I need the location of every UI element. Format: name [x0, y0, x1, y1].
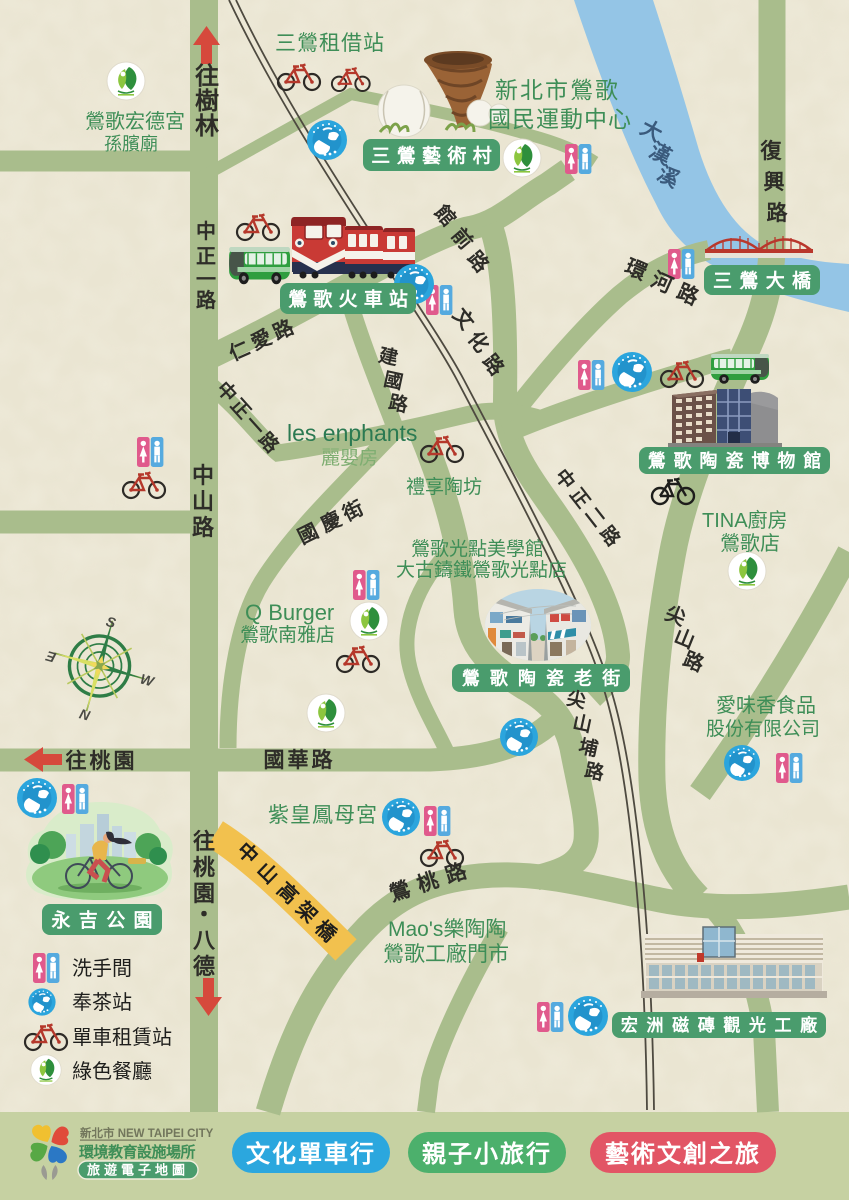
svg-text:公: 公: [106, 909, 125, 931]
svg-text:復: 復: [760, 139, 783, 163]
svg-text:洗手間: 洗手間: [72, 957, 132, 980]
svg-text:國民運動中心: 國民運動中心: [488, 106, 632, 132]
svg-text:華: 華: [288, 749, 309, 772]
svg-text:一: 一: [196, 269, 216, 291]
svg-text:鶯歌光點美學館: 鶯歌光點美學館: [411, 538, 544, 560]
svg-text:孫臏廟: 孫臏廟: [104, 134, 158, 154]
svg-text:Q Burger: Q Burger: [245, 600, 334, 625]
svg-text:路: 路: [196, 288, 217, 312]
svg-text:大: 大: [766, 269, 785, 292]
svg-text:旅遊電子地圖: 旅遊電子地圖: [87, 1163, 189, 1178]
svg-text:宏: 宏: [621, 1015, 638, 1035]
svg-text:觀: 觀: [723, 1015, 740, 1035]
svg-text:紫皇鳳母宮: 紫皇鳳母宮: [268, 804, 378, 827]
svg-text:路: 路: [767, 201, 789, 225]
svg-text:單車租賃站: 單車租賃站: [72, 1026, 172, 1049]
svg-text:路: 路: [192, 515, 215, 540]
svg-text:藝術文創之旅: 藝術文創之旅: [605, 1140, 761, 1168]
svg-text:藝: 藝: [422, 145, 441, 167]
svg-text:陶: 陶: [518, 668, 536, 689]
svg-text:中: 中: [192, 463, 214, 488]
svg-text:園: 園: [114, 750, 135, 773]
svg-text:老: 老: [574, 668, 592, 689]
svg-text:桃: 桃: [90, 749, 111, 773]
svg-text:鶯歌宏德宮: 鶯歌宏德宮: [85, 110, 185, 133]
svg-text:鶯: 鶯: [288, 287, 307, 310]
svg-text:橋: 橋: [792, 269, 812, 292]
svg-text:三: 三: [371, 146, 390, 167]
svg-text:火: 火: [338, 288, 358, 310]
svg-text:永: 永: [50, 908, 71, 931]
svg-text:山: 山: [192, 489, 214, 514]
svg-text:歌: 歌: [490, 668, 509, 689]
svg-text:綠色餐廳: 綠色餐廳: [72, 1060, 152, 1083]
svg-text:洲: 洲: [647, 1016, 664, 1035]
svg-text:三鶯租借站: 三鶯租借站: [275, 32, 385, 55]
svg-text:林: 林: [195, 113, 219, 140]
svg-text:文化單車行: 文化單車行: [246, 1140, 376, 1168]
svg-text:工: 工: [775, 1016, 792, 1035]
svg-text:瓷: 瓷: [726, 450, 744, 471]
svg-text:・: ・: [193, 902, 215, 927]
svg-text:鶯歌工廠門市: 鶯歌工廠門市: [383, 943, 509, 966]
svg-text:歌: 歌: [674, 450, 693, 471]
svg-text:往: 往: [66, 749, 87, 773]
svg-text:三: 三: [713, 271, 732, 292]
svg-text:國: 國: [264, 749, 285, 772]
svg-text:八: 八: [193, 928, 216, 953]
svg-text:鶯: 鶯: [462, 668, 480, 689]
svg-text:物: 物: [777, 450, 795, 471]
svg-text:站: 站: [389, 287, 408, 310]
svg-text:鶯歌店: 鶯歌店: [720, 532, 780, 555]
svg-text:大古鑄鐵鶯歌光點店: 大古鑄鐵鶯歌光點店: [396, 559, 567, 581]
svg-text:桃: 桃: [193, 855, 215, 880]
svg-text:往: 往: [195, 62, 219, 90]
svg-text:新北市鶯歌: 新北市鶯歌: [495, 77, 620, 103]
svg-text:正: 正: [196, 246, 216, 268]
svg-text:路: 路: [312, 748, 334, 772]
svg-text:往: 往: [193, 829, 215, 854]
svg-text:歌: 歌: [313, 287, 333, 310]
svg-text:環境教育設施場所: 環境教育設施場所: [79, 1143, 196, 1161]
svg-text:廠: 廠: [800, 1015, 818, 1035]
svg-text:新北市 NEW TAIPEI CITY: 新北市 NEW TAIPEI CITY: [80, 1126, 214, 1140]
svg-text:TINA廚房: TINA廚房: [702, 508, 788, 532]
svg-text:車: 車: [364, 287, 383, 310]
svg-text:博: 博: [752, 450, 770, 471]
svg-text:興: 興: [764, 171, 785, 194]
svg-text:街: 街: [601, 668, 620, 689]
svg-text:親子小旅行: 親子小旅行: [422, 1140, 552, 1168]
svg-text:鶯: 鶯: [648, 450, 666, 471]
svg-text:村: 村: [473, 144, 492, 167]
svg-text:德: 德: [193, 954, 215, 979]
svg-text:麗嬰房: 麗嬰房: [321, 447, 378, 469]
svg-text:磚: 磚: [698, 1016, 715, 1035]
svg-text:陶: 陶: [700, 450, 718, 471]
svg-text:鶯: 鶯: [739, 269, 758, 292]
svg-text:術: 術: [446, 144, 466, 167]
svg-text:園: 園: [133, 909, 152, 931]
svg-text:樹: 樹: [195, 88, 219, 115]
svg-text:禮享陶坊: 禮享陶坊: [406, 476, 482, 498]
svg-text:瓷: 瓷: [546, 668, 564, 689]
svg-text:鶯歌南雅店: 鶯歌南雅店: [240, 624, 335, 646]
svg-text:Mao's樂陶陶: Mao's樂陶陶: [388, 918, 506, 941]
svg-text:磁: 磁: [672, 1015, 689, 1035]
svg-text:鶯: 鶯: [397, 144, 416, 167]
svg-text:奉茶站: 奉茶站: [72, 991, 132, 1014]
svg-text:吉: 吉: [79, 908, 98, 931]
svg-text:les enphants: les enphants: [287, 420, 417, 446]
svg-text:館: 館: [803, 450, 821, 471]
svg-text:股份有限公司: 股份有限公司: [706, 718, 820, 740]
svg-text:光: 光: [748, 1015, 766, 1035]
svg-text:愛味香食品: 愛味香食品: [716, 694, 816, 717]
svg-text:中: 中: [196, 219, 216, 243]
